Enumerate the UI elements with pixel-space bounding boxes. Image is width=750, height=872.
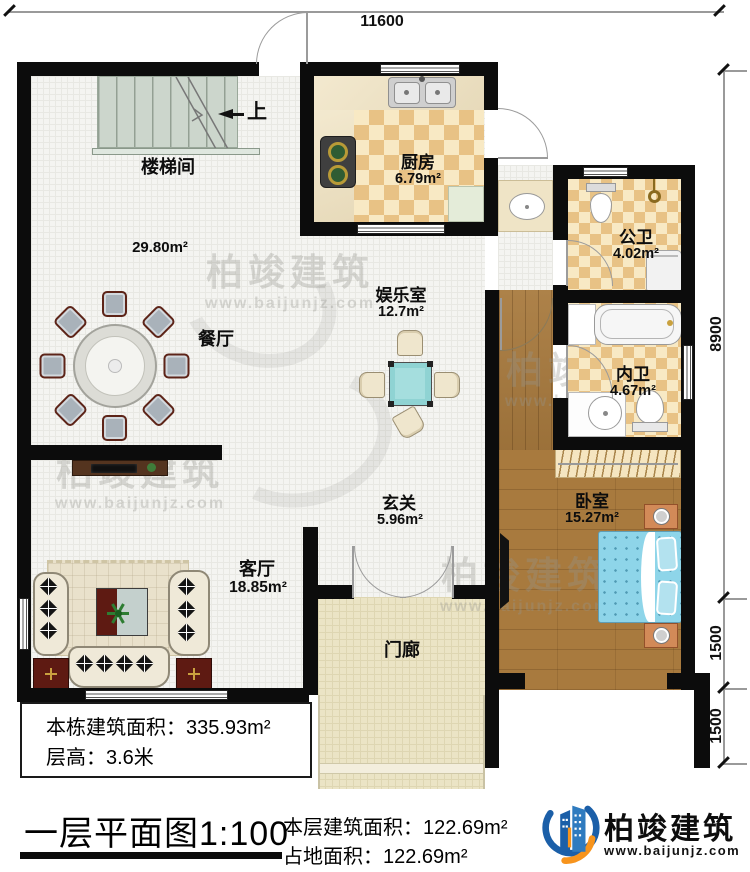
dining-chair: [40, 354, 66, 379]
foyer-area-label: 5.96m²: [372, 513, 428, 528]
wall-kitchen-right-upper: [484, 62, 498, 110]
dimension-stub: [723, 763, 747, 765]
bed-sheet-fold: [641, 532, 655, 622]
pillow: [656, 580, 678, 615]
bedroom-area-label: 15.27m²: [551, 511, 633, 526]
window-kitchen-pass: [357, 224, 445, 234]
game-chair: [359, 372, 385, 398]
dimension-stub: [723, 70, 747, 72]
plant-icon: [147, 463, 156, 472]
bathtub-inner: [600, 309, 674, 339]
sink-drain: [435, 90, 440, 95]
public-bath-area-label: 4.02m²: [607, 247, 665, 262]
porch-step-line: [318, 763, 485, 774]
porch-floor: [318, 597, 485, 789]
shower-head-icon: [648, 190, 661, 203]
ensuite-sink-drain: [603, 411, 608, 416]
dining-table-hub: [108, 359, 122, 373]
brand-website: www.baijunjz.com: [604, 843, 738, 858]
table-corner: [388, 361, 394, 367]
wardrobe-rod: [558, 463, 678, 465]
porch-left-edge: [318, 695, 320, 789]
dimension-right-middle-label: 1500: [708, 613, 726, 673]
bathtub: [594, 304, 682, 345]
pillow: [656, 536, 678, 571]
info-box: 本栋建筑面积：335.93m² 层高：3.6米: [20, 702, 312, 778]
tv-cabinet: [72, 460, 168, 476]
kitchen-door-swing: [498, 108, 548, 158]
coffee-table: [96, 588, 148, 636]
living-area-label: 18.85m²: [226, 580, 290, 596]
window-ensuite-right: [683, 345, 693, 400]
staircase: [97, 76, 238, 148]
foyer-label: 玄关: [376, 495, 422, 513]
dimension-stub: [723, 688, 747, 690]
living-label: 客厅: [233, 560, 281, 579]
wall-foyer-stub-right: [452, 585, 488, 599]
bedroom-label: 卧室: [555, 493, 629, 511]
ensuite-label: 内卫: [610, 366, 656, 384]
info-floor-height: 层高：3.6米: [46, 743, 310, 773]
stairs-up-arrow: [218, 109, 233, 119]
stove-burner: [328, 142, 348, 162]
wall-mid-divider: [17, 445, 222, 460]
ensuite-toilet-base: [632, 422, 668, 432]
wall-right-outer: [681, 165, 695, 690]
toilet: [586, 183, 616, 192]
kitchen-area-label: 6.79m²: [390, 172, 446, 187]
wardrobe: [555, 448, 681, 478]
wall-corridor-left: [485, 290, 499, 768]
brand-logo-icon: [538, 799, 600, 865]
hall-vanity: [498, 180, 553, 232]
game-table: [389, 362, 432, 406]
wall-bath-left-upper: [553, 165, 568, 240]
wall-kitchen-right-lower: [484, 158, 498, 236]
nightstand-lamp: [654, 628, 669, 643]
wall-bath-bottom: [553, 437, 695, 450]
stair-rail: [92, 148, 260, 155]
entertainment-label: 娱乐室: [366, 287, 436, 305]
brand-name: 柏竣建筑: [604, 804, 738, 848]
dining-chair: [164, 354, 190, 379]
wall-top-left: [17, 62, 259, 76]
nightstand: [644, 504, 678, 529]
floor-plan: 柏竣建筑 www.baijunjz.com 柏竣建筑 www.baijunjz.…: [0, 0, 750, 872]
nightstand-lamp: [654, 509, 669, 524]
wall-kitchen-left: [300, 62, 314, 236]
dining-chair: [102, 291, 127, 317]
page-title: 一层平面图1:100: [24, 806, 284, 855]
table-corner: [427, 401, 433, 407]
stairwell-label: 楼梯间: [130, 158, 206, 177]
corner-table: [33, 658, 69, 692]
hall-sink-drain: [525, 205, 529, 209]
kitchen-label: 厨房: [395, 154, 441, 172]
dining-label: 餐厅: [192, 330, 240, 349]
bed: [598, 531, 682, 623]
wall-porch-left: [303, 527, 318, 695]
dining-table: [73, 324, 157, 408]
kitchen-stove: [320, 136, 356, 188]
wall-foyer-stub-left: [318, 585, 354, 599]
dining-chair: [102, 415, 127, 441]
wall-bath-divider: [553, 290, 695, 303]
wall-bedroom-stub-left: [485, 673, 525, 689]
foyer-door-leaf-right: [452, 546, 454, 598]
corner-table: [176, 658, 212, 692]
stove-burner: [328, 165, 348, 185]
game-table-top: [395, 368, 425, 399]
dimension-right-upper-label: 8900: [708, 304, 726, 364]
window-living-left: [19, 598, 29, 650]
window-bath-top: [583, 167, 628, 177]
bathtub-deck: [568, 304, 596, 345]
footer-floor-area: 本层建筑面积：122.69m²: [283, 811, 523, 840]
hall-area-label: 29.80m²: [122, 240, 198, 256]
brand-logo: 柏竣建筑 www.baijunjz.com: [538, 797, 738, 867]
bedroom-tv: [500, 533, 509, 609]
info-building-area: 本栋建筑面积：335.93m²: [46, 713, 310, 743]
window-living-bottom: [85, 690, 228, 700]
footer-land-area: 占地面积：122.69m²: [283, 840, 523, 869]
stairs-up-label: 上: [245, 102, 269, 123]
entertainment-area-label: 12.7m²: [372, 305, 430, 320]
shower-hose: [653, 179, 655, 191]
ensuite-area-label: 4.67m²: [604, 384, 662, 399]
sink-drain: [404, 90, 409, 95]
nightstand: [644, 623, 678, 648]
dimension-stub: [723, 598, 747, 600]
bathtub-faucet: [667, 320, 673, 326]
window-kitchen-top: [380, 64, 460, 74]
ensuite-sink: [588, 396, 622, 430]
title-underline: [20, 852, 282, 859]
tv-icon: [91, 464, 137, 473]
public-bath-label: 公卫: [613, 229, 659, 247]
porch-label: 门廊: [378, 641, 426, 660]
kitchen-appliance: [448, 186, 484, 222]
stairs-up-arrow-line: [232, 113, 244, 116]
game-chair: [397, 330, 423, 356]
faucet-icon: [419, 76, 425, 82]
dimension-right-lower-label: 1500: [708, 696, 726, 756]
entry-top-door-swing: [256, 12, 308, 64]
game-chair: [434, 372, 460, 398]
table-corner: [427, 361, 433, 367]
plant-icon: [107, 602, 129, 624]
kitchen-sink: [388, 77, 456, 108]
dimension-top-label: 11600: [330, 13, 434, 31]
table-corner: [388, 401, 394, 407]
